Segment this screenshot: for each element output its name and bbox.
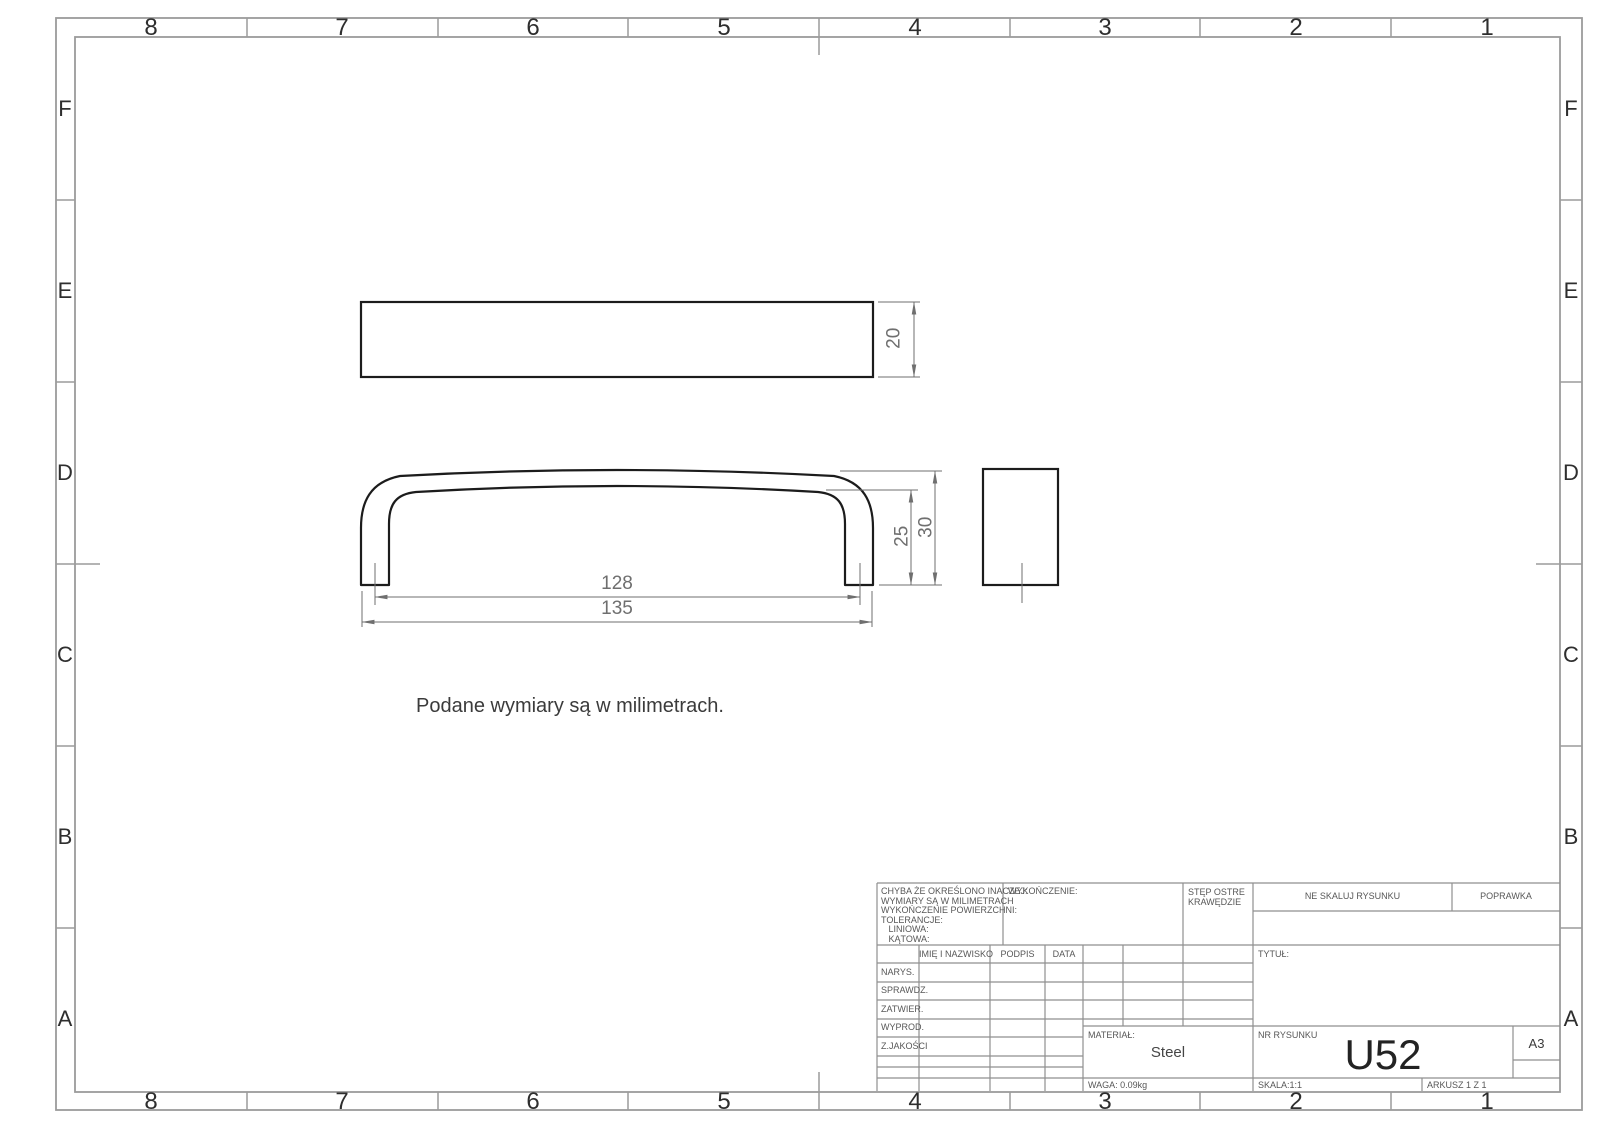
titleblock-row-approved: ZATWIER. (881, 1005, 923, 1015)
titleblock-col-date: DATA (1045, 950, 1083, 960)
titleblock-tolerance-note: CHYBA ŻE OKREŚLONO INACZEJ: WYMIARY SĄ W… (881, 887, 1028, 945)
zone-row-right-e: E (1557, 281, 1585, 301)
zone-row-right-f: F (1557, 99, 1585, 119)
dim-top-view-height: 20 (885, 314, 906, 362)
front-view (361, 470, 873, 585)
zone-row-left-e: E (51, 281, 79, 301)
titleblock-row-quality: Z.JAKOŚCI (881, 1042, 928, 1052)
titleblock-title-label: TYTUŁ: (1258, 950, 1289, 960)
titleblock-row-drawn: NARYS. (881, 968, 914, 978)
titleblock-scale: SKALA:1:1 (1258, 1081, 1302, 1091)
zone-col-bottom-2: 2 (1281, 1092, 1311, 1112)
zone-row-right-b: B (1557, 827, 1585, 847)
titleblock-revision-label: POPRAWKA (1452, 892, 1560, 902)
zone-col-top-5: 5 (709, 18, 739, 38)
dim-overall-height: 30 (917, 503, 938, 551)
zone-col-top-2: 2 (1281, 18, 1311, 38)
zone-row-right-c: C (1557, 645, 1585, 665)
zone-col-bottom-4: 4 (900, 1092, 930, 1112)
side-view (983, 469, 1058, 585)
titleblock-col-name: IMIĘ I NAZWISKO (919, 950, 990, 960)
titleblock-edges-note: STĘP OSTRE KRAWĘDZIE (1188, 887, 1245, 907)
zone-row-left-f: F (51, 99, 79, 119)
zone-ticks (56, 18, 1582, 1110)
titleblock-row-manufactured: WYPROD. (881, 1023, 924, 1033)
zone-col-bottom-6: 6 (518, 1092, 548, 1112)
drawing-canvas (0, 0, 1600, 1131)
titleblock-do-not-scale: NE SKALUJ RYSUNKU (1253, 892, 1452, 902)
sheet-borders (56, 18, 1582, 1110)
zone-col-top-1: 1 (1472, 18, 1502, 38)
units-note: Podane wymiary są w milimetrach. (416, 696, 724, 718)
zone-col-bottom-5: 5 (709, 1092, 739, 1112)
zone-col-top-3: 3 (1090, 18, 1120, 38)
zone-col-top-6: 6 (518, 18, 548, 38)
zone-col-bottom-7: 7 (327, 1092, 357, 1112)
zone-col-top-8: 8 (136, 18, 166, 38)
zone-col-bottom-3: 3 (1090, 1092, 1120, 1112)
dim-hole-spacing: 128 (587, 574, 647, 595)
zone-col-bottom-8: 8 (136, 1092, 166, 1112)
zone-row-left-c: C (51, 645, 79, 665)
titleblock-material-value: Steel (1083, 1045, 1253, 1061)
titleblock-weight: WAGA: 0.09kg (1088, 1081, 1147, 1091)
dim-overall-length: 135 (587, 599, 647, 620)
titleblock-col-signature: PODPIS (990, 950, 1045, 960)
titleblock-sheet-number: ARKUSZ 1 Z 1 (1427, 1081, 1487, 1091)
top-view (361, 302, 873, 377)
zone-row-left-a: A (51, 1009, 79, 1029)
zone-col-bottom-1: 1 (1472, 1092, 1502, 1112)
dim-inner-height: 25 (893, 512, 914, 560)
titleblock-material-label: MATERIAŁ: (1088, 1031, 1135, 1041)
titleblock-row-checked: SPRAWDZ. (881, 986, 928, 996)
titleblock-drawing-number: U52 (1253, 1034, 1513, 1076)
drawing-sheet: 8 7 6 5 4 3 2 1 8 7 6 5 4 3 2 1 F E D C … (0, 0, 1600, 1131)
zone-row-left-b: B (51, 827, 79, 847)
zone-col-top-7: 7 (327, 18, 357, 38)
titleblock-paper-size: A3 (1513, 1037, 1560, 1051)
titleblock-finish-label: WYKOŃCZENIE: (1008, 887, 1078, 897)
zone-row-right-a: A (1557, 1009, 1585, 1029)
zone-col-top-4: 4 (900, 18, 930, 38)
zone-row-right-d: D (1557, 463, 1585, 483)
zone-row-left-d: D (51, 463, 79, 483)
